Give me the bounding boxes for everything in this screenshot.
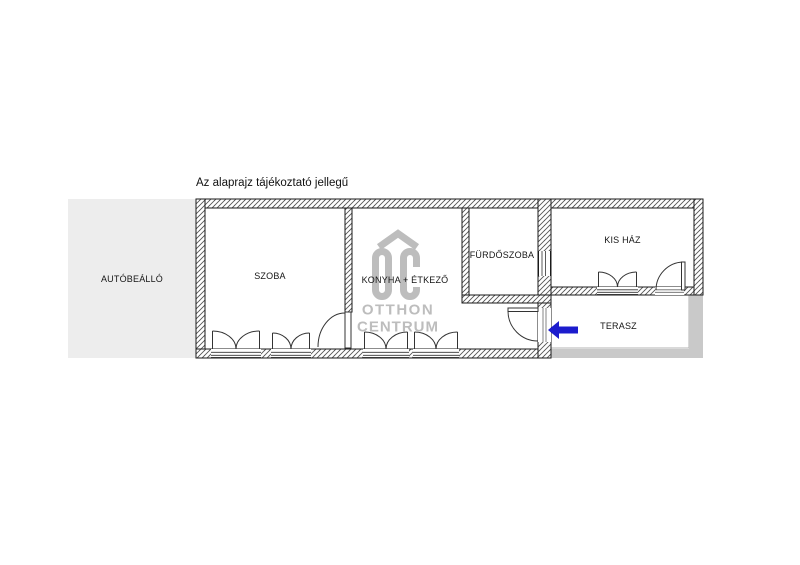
window-symbol-konyha-1 xyxy=(363,332,409,358)
wall-top xyxy=(196,199,703,208)
window-symbol-kishaz xyxy=(597,272,638,295)
watermark-line1: OTTHON xyxy=(362,302,434,319)
watermark-o-letter xyxy=(376,252,389,297)
terrace-border-right xyxy=(689,295,703,358)
window-symbol-konyha-2 xyxy=(413,332,459,358)
door-symbol-entrance xyxy=(508,308,551,342)
room-label-carport: AUTÓBEÁLLÓ xyxy=(101,274,163,284)
watermark-line2: CENTRUM xyxy=(357,319,439,336)
window-symbol-szoba-2 xyxy=(271,333,311,358)
room-label-konyha: KONYHA + ÉTKEZŐ xyxy=(345,275,465,285)
room-label-szoba: SZOBA xyxy=(200,271,340,281)
wall-smallhouse-right xyxy=(694,199,703,295)
room-label-furdoszoba: FÜRDŐSZOBA xyxy=(462,250,542,260)
watermark-roof-icon xyxy=(379,234,417,248)
room-label-kishaz: KIS HÁZ xyxy=(551,235,694,245)
page-root: { "title": "Az alaprajz tájékoztató jell… xyxy=(0,0,800,565)
wall-room-kitchen xyxy=(345,208,352,312)
room-label-terasz: TERASZ xyxy=(548,321,689,331)
terrace-border-bottom xyxy=(548,349,703,358)
wall-bathroom-bottom xyxy=(462,295,551,303)
carport-area-label-box: AUTÓBEÁLLÓ xyxy=(68,199,196,358)
door-symbol-szoba xyxy=(318,312,351,348)
door-symbol-kishaz xyxy=(655,262,685,295)
window-symbol-szoba-1 xyxy=(211,331,261,358)
